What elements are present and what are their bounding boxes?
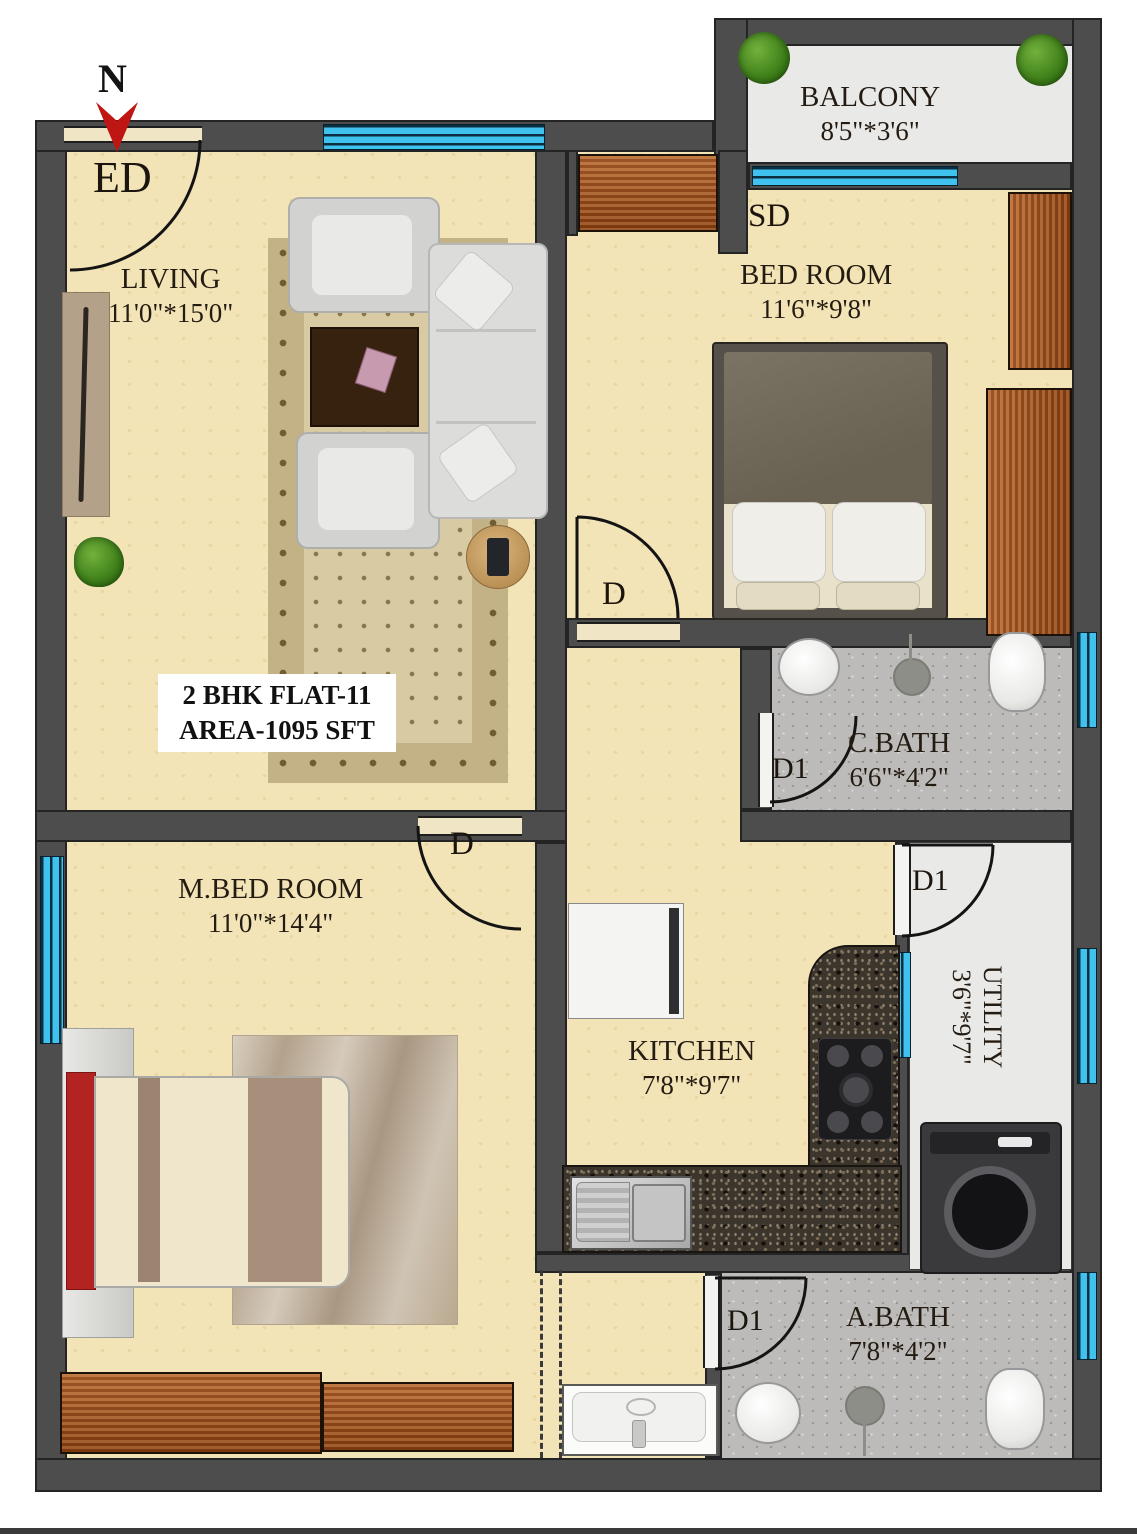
tv-unit [62,292,110,517]
cbath-toilet-icon [988,632,1046,712]
mbedroom-name: M.BED ROOM [178,873,363,905]
entrance-door-opening [64,126,202,143]
mbed-frame-red [66,1072,96,1290]
magazine-icon [355,347,397,393]
wall-bedroom-nook-right [718,150,748,254]
sliding-door-window [752,166,958,186]
phone-icon [487,538,509,576]
wall-bedroom-nook-left [567,150,578,236]
abath-dims: 7'8"*4'2" [846,1335,950,1368]
cbath-drain-icon [893,658,931,696]
coffee-table [310,327,419,427]
mbed-window [40,856,64,1044]
living-name: LIVING [121,263,221,295]
wall-cbath-bottom [740,810,1072,842]
kitchen-label: KITCHEN 7'8"*9'7" [628,1034,755,1102]
utility-door-label: D1 [912,864,949,898]
living-dims: 11'0"*15'0" [108,297,233,330]
utility-dims: 3'6"*9'7" [946,969,977,1065]
wall-outer-right [1072,18,1102,1492]
balcony-plant-icon [738,32,790,84]
cbath-name: C.BATH [848,727,950,759]
bedroom-door-opening [577,622,680,642]
title-line1: 2 BHK FLAT-11 [182,678,371,713]
kitchen-sink [570,1176,692,1250]
page-bottom-border [0,1528,1137,1534]
living-window [323,124,545,150]
mbedroom-label: M.BED ROOM 11'0"*14'4" [178,872,363,940]
living-label: LIVING 11'0"*15'0" [108,262,233,330]
balcony-plant-icon [1016,34,1068,86]
utility-window [1077,948,1097,1084]
bedroom-label: BED ROOM 11'6"*9'8" [740,258,892,326]
mbed-door-label: D [450,826,474,863]
mbed-wardrobe [322,1382,514,1452]
bed-cushion [736,582,820,610]
cbath-window [1077,632,1097,728]
cbath-label: C.BATH 6'6"*4'2" [848,726,950,794]
tv-icon [78,307,88,502]
bed-cushion [836,582,920,610]
sofa-pillow [432,249,517,334]
cbath-door-label: D1 [772,752,809,786]
mbed-pillow-band [138,1078,160,1282]
utility-door-opening [893,845,911,935]
mbed-mattress [94,1076,350,1288]
mbed-pillow-band [248,1078,322,1282]
abath-name: A.BATH [846,1301,950,1333]
bedroom-wardrobe [578,154,718,232]
sofa-pillow [436,421,520,505]
wash-tub [562,1384,718,1456]
mbed-wardrobe [60,1372,322,1454]
entrance-door-label: ED [93,152,152,203]
bed-pillow [832,502,926,582]
tap-icon [632,1420,646,1448]
bedroom-door-label: D [602,576,626,613]
utility-name: UTILITY [977,966,1008,1069]
abath-label: A.BATH 7'8"*4'2" [846,1300,950,1368]
fridge [568,903,684,1019]
side-table [466,525,530,589]
bedroom-wardrobe [1008,192,1072,370]
gas-stove-icon [818,1038,892,1140]
living-plant-icon [74,537,124,587]
balcony-name: BALCONY [800,81,940,113]
bed-duvet [724,352,932,512]
abath-basin-icon [735,1382,801,1444]
armchair [288,197,440,313]
sofa [428,243,548,519]
title-box: 2 BHK FLAT-11 AREA-1095 SFT [158,674,396,752]
armchair [296,432,440,549]
mbedroom-dims: 11'0"*14'4" [178,907,363,940]
washing-machine-icon [920,1122,1062,1274]
sliding-door-label: SD [748,198,790,235]
kitchen-name: KITCHEN [628,1035,755,1067]
wall-balcony-left [714,18,748,168]
abath-door-opening [703,1276,720,1368]
title-line2: AREA-1095 SFT [179,713,375,748]
floor-plan: N ED LIVING 11'0"*15'0" BALCONY 8'5"*3'6… [0,0,1137,1536]
bedroom-dims: 11'6"*9'8" [740,293,892,326]
abath-door-label: D1 [727,1304,764,1338]
bed-pillow [732,502,826,582]
compass-north-label: N [98,55,127,102]
bedroom-bed [712,342,948,620]
utility-label: UTILITY 3'6"*9'7" [912,952,1042,1082]
wall-outer-bottom [35,1458,1102,1492]
bedroom-name: BED ROOM [740,259,892,291]
kitchen-dims: 7'8"*9'7" [628,1069,755,1102]
abath-window [1077,1272,1097,1360]
abath-toilet-icon [985,1368,1045,1450]
cbath-basin-icon [778,638,840,696]
bedroom-wardrobe [986,388,1072,636]
abath-drain-icon [845,1386,885,1426]
cbath-dims: 6'6"*4'2" [848,761,950,794]
balcony-dims: 8'5"*3'6" [800,115,940,148]
passage-dashed-line [540,1270,562,1458]
balcony-label: BALCONY 8'5"*3'6" [800,80,940,148]
